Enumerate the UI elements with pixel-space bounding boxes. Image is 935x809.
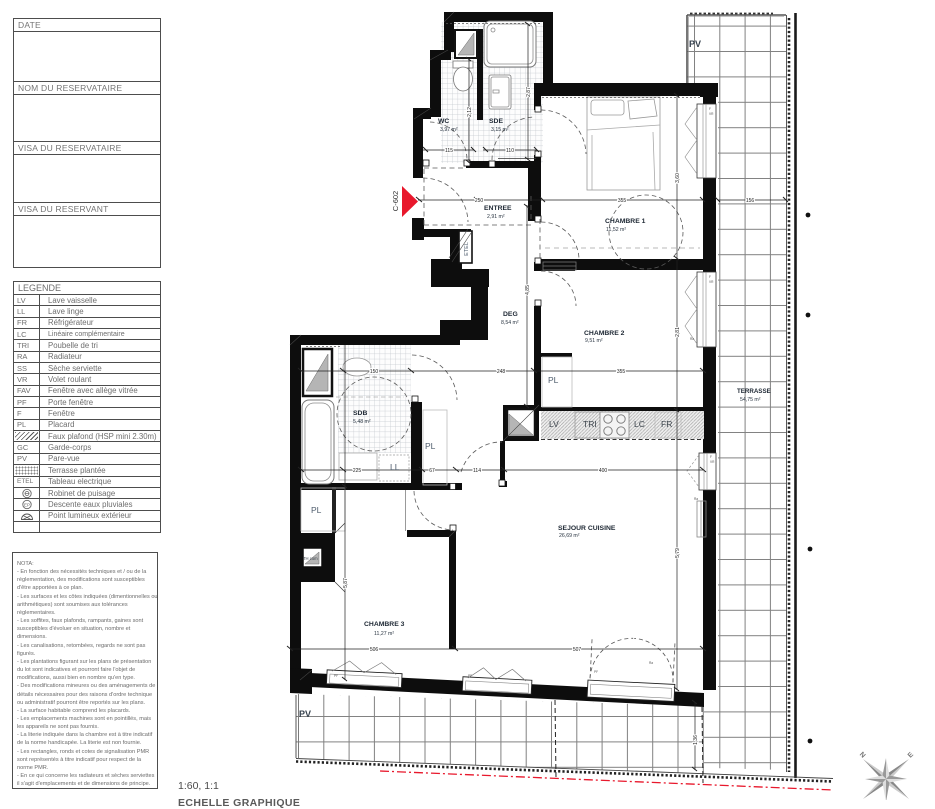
svg-text:2,87: 2,87	[526, 87, 532, 97]
svg-text:TRI: TRI	[583, 419, 597, 429]
svg-text:3,60: 3,60	[675, 173, 681, 183]
svg-text:LC: LC	[634, 419, 645, 429]
svg-text:F: F	[709, 107, 711, 111]
svg-text:5,48 m²: 5,48 m²	[353, 419, 371, 425]
svg-text:355: 355	[617, 369, 626, 375]
svg-text:248: 248	[497, 369, 506, 375]
svg-text:115: 115	[445, 148, 453, 154]
svg-text:Ra: Ra	[649, 661, 653, 665]
svg-text:CHAMBRE 3: CHAMBRE 3	[364, 621, 405, 628]
svg-text:F: F	[710, 455, 712, 459]
svg-text:2,12: 2,12	[467, 107, 473, 117]
svg-text:5,79: 5,79	[675, 548, 681, 558]
svg-text:N: N	[858, 751, 867, 760]
svg-text:506: 506	[370, 647, 379, 653]
svg-text:VR: VR	[709, 112, 714, 116]
svg-text:PL: PL	[548, 375, 559, 385]
svg-text:507: 507	[573, 647, 582, 653]
svg-text:156: 156	[746, 198, 755, 204]
svg-text:8,54 m²: 8,54 m²	[501, 320, 519, 326]
svg-text:CHAMBRE 2: CHAMBRE 2	[584, 330, 625, 337]
svg-text:250: 250	[475, 198, 484, 204]
svg-text:PF: PF	[594, 670, 598, 674]
svg-text:PL: PL	[311, 505, 322, 515]
svg-text:VR: VR	[709, 280, 714, 284]
svg-text:2,91 m²: 2,91 m²	[487, 214, 505, 220]
svg-text:SEJOUR CUISINE: SEJOUR CUISINE	[558, 525, 616, 532]
svg-text:FR: FR	[661, 419, 672, 429]
svg-text:11,52 m²: 11,52 m²	[606, 227, 626, 233]
svg-text:TH com: TH com	[303, 556, 318, 561]
svg-text:9,51 m²: 9,51 m²	[585, 338, 603, 344]
svg-text:PV: PV	[299, 709, 311, 719]
svg-text:E: E	[907, 751, 915, 759]
svg-text:ENTREE: ENTREE	[484, 205, 512, 212]
svg-text:355: 355	[618, 198, 627, 204]
svg-text:2,81: 2,81	[675, 327, 681, 337]
svg-text:225: 225	[353, 468, 362, 474]
svg-text:TERRASSE: TERRASSE	[737, 388, 771, 395]
svg-text:400: 400	[599, 468, 608, 474]
svg-text:SDB: SDB	[353, 410, 367, 417]
svg-text:54,75 m²: 54,75 m²	[740, 397, 761, 403]
svg-text:114: 114	[473, 468, 481, 474]
svg-text:CHAMBRE 1: CHAMBRE 1	[605, 218, 646, 225]
svg-text:DEG: DEG	[503, 311, 518, 318]
svg-text:67: 67	[429, 468, 435, 474]
svg-text:26,69 m²: 26,69 m²	[559, 533, 580, 539]
svg-text:PV: PV	[689, 39, 701, 49]
svg-text:4,85: 4,85	[525, 285, 531, 295]
svg-text:Ra: Ra	[690, 337, 694, 341]
svg-text:WC: WC	[438, 118, 449, 125]
svg-text:150: 150	[370, 369, 379, 375]
svg-text:Ra: Ra	[694, 497, 698, 501]
svg-text:C-602: C-602	[391, 191, 400, 211]
svg-text:3,97 m²: 3,97 m²	[440, 127, 458, 133]
svg-text:PL: PL	[425, 441, 436, 451]
svg-text:1,36: 1,36	[693, 735, 699, 745]
svg-text:LV: LV	[549, 419, 559, 429]
svg-text:3,15 m²: 3,15 m²	[491, 127, 509, 133]
svg-text:11,27 m²: 11,27 m²	[374, 631, 394, 637]
svg-text:ETEL: ETEL	[464, 242, 470, 256]
svg-text:PF: PF	[468, 674, 472, 678]
svg-text:5,87: 5,87	[343, 578, 349, 588]
svg-text:LL: LL	[390, 462, 400, 472]
svg-text:F: F	[709, 275, 711, 279]
svg-text:SDE: SDE	[489, 118, 503, 125]
svg-text:110: 110	[506, 148, 514, 154]
svg-text:PF: PF	[334, 674, 338, 678]
svg-text:VR: VR	[710, 460, 715, 464]
